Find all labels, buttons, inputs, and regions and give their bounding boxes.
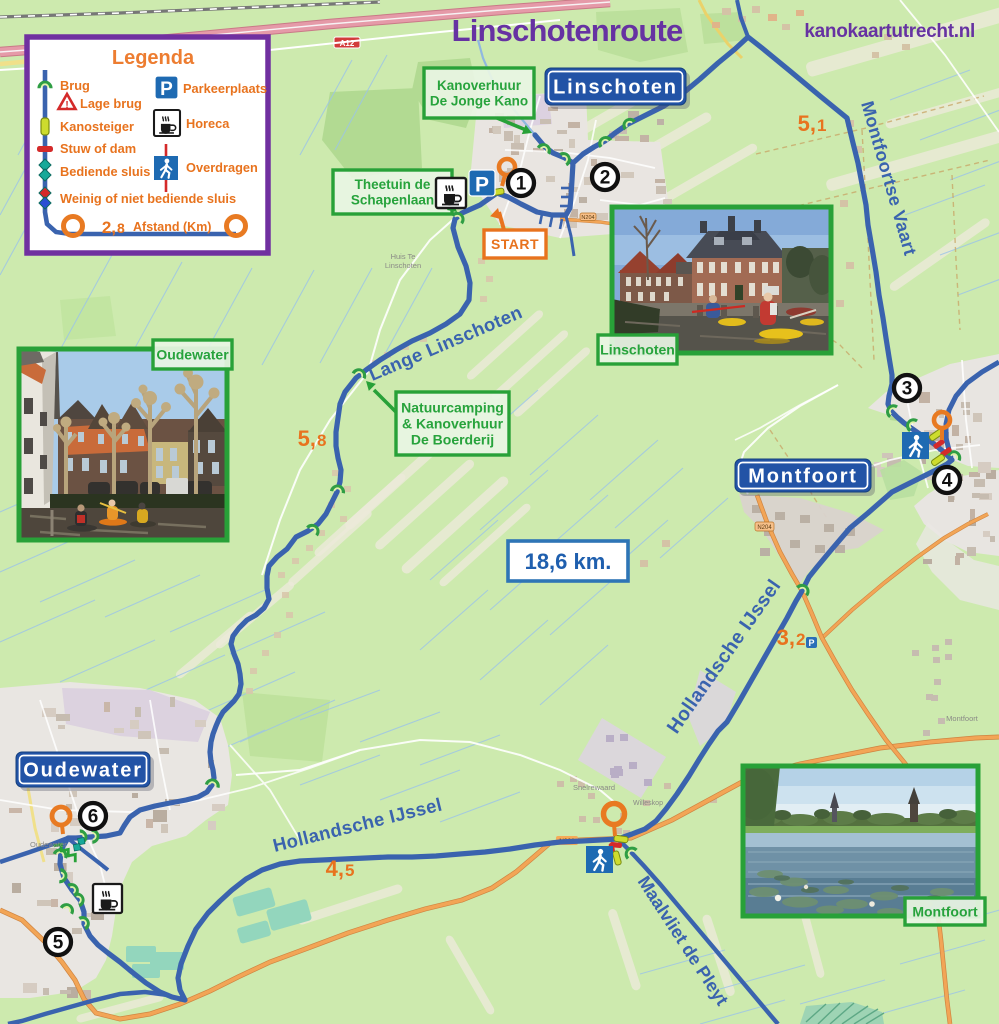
svg-text:& Kanoverhuur: & Kanoverhuur <box>402 415 504 431</box>
svg-text:1: 1 <box>817 116 826 135</box>
svg-text:Snelrewaard: Snelrewaard <box>573 783 615 792</box>
svg-text:2: 2 <box>600 168 611 189</box>
svg-text:Lage brug: Lage brug <box>80 96 142 111</box>
svg-text:Oudewater: Oudewater <box>23 760 143 782</box>
svg-text:De Jonge Kano: De Jonge Kano <box>430 94 528 109</box>
svg-text:Overdragen: Overdragen <box>186 160 258 175</box>
svg-text:1: 1 <box>516 174 527 195</box>
svg-text:!: ! <box>65 100 68 111</box>
svg-text:18,6 km.: 18,6 km. <box>525 549 612 574</box>
svg-text:Oudewater: Oudewater <box>30 840 67 849</box>
svg-text:4: 4 <box>942 471 953 492</box>
svg-text:Montfoort: Montfoort <box>748 466 858 488</box>
svg-text:Schapenlaan: Schapenlaan <box>351 193 434 208</box>
svg-text:5,: 5, <box>798 111 816 136</box>
svg-text:8: 8 <box>317 431 326 450</box>
svg-text:Linschotenroute: Linschotenroute <box>452 13 683 48</box>
svg-text:Huis Te: Huis Te <box>391 252 416 261</box>
svg-text:P: P <box>160 79 173 100</box>
svg-text:Weinig of niet bediende sluis: Weinig of niet bediende sluis <box>60 191 236 206</box>
svg-text:5,: 5, <box>298 426 316 451</box>
svg-text:N204: N204 <box>757 525 772 531</box>
svg-text:Montfoort: Montfoort <box>912 903 978 919</box>
svg-text:Stuw of dam: Stuw of dam <box>60 141 136 156</box>
svg-text:P: P <box>808 638 814 648</box>
svg-text:Linschoten: Linschoten <box>600 341 675 357</box>
svg-text:Horeca: Horeca <box>186 116 230 131</box>
svg-text:2,: 2, <box>102 218 116 237</box>
svg-text:5: 5 <box>53 933 64 954</box>
svg-text:2: 2 <box>796 630 805 649</box>
svg-text:Linschoten: Linschoten <box>553 77 678 99</box>
svg-text:Brug: Brug <box>60 78 90 93</box>
svg-text:Bediende sluis: Bediende sluis <box>60 164 150 179</box>
svg-text:Kanosteiger: Kanosteiger <box>60 119 134 134</box>
svg-text:Legenda: Legenda <box>112 47 195 69</box>
svg-text:6: 6 <box>88 807 99 828</box>
svg-text:De Boerderij: De Boerderij <box>411 431 494 447</box>
svg-text:4,: 4, <box>326 856 344 881</box>
svg-text:8: 8 <box>117 220 125 236</box>
svg-text:START: START <box>491 236 539 252</box>
svg-text:5: 5 <box>345 861 354 880</box>
svg-text:Theetuin de: Theetuin de <box>355 177 431 192</box>
svg-text:3: 3 <box>902 379 913 400</box>
svg-text:kanokaartutrecht.nl: kanokaartutrecht.nl <box>804 21 975 42</box>
svg-text:N204: N204 <box>581 215 594 221</box>
svg-text:Montfoort: Montfoort <box>946 714 979 723</box>
svg-text:Willeskop: Willeskop <box>633 800 663 807</box>
svg-text:Kanoverhuur: Kanoverhuur <box>437 78 522 93</box>
svg-text:P: P <box>475 173 489 196</box>
svg-text:Oudewater: Oudewater <box>156 346 229 362</box>
svg-text:Linschoten: Linschoten <box>385 261 421 270</box>
svg-text:3,: 3, <box>777 625 795 650</box>
svg-text:Natuurcamping: Natuurcamping <box>401 399 504 415</box>
svg-text:Parkeerplaats: Parkeerplaats <box>183 81 267 96</box>
svg-text:Afstand (Km): Afstand (Km) <box>133 220 211 234</box>
